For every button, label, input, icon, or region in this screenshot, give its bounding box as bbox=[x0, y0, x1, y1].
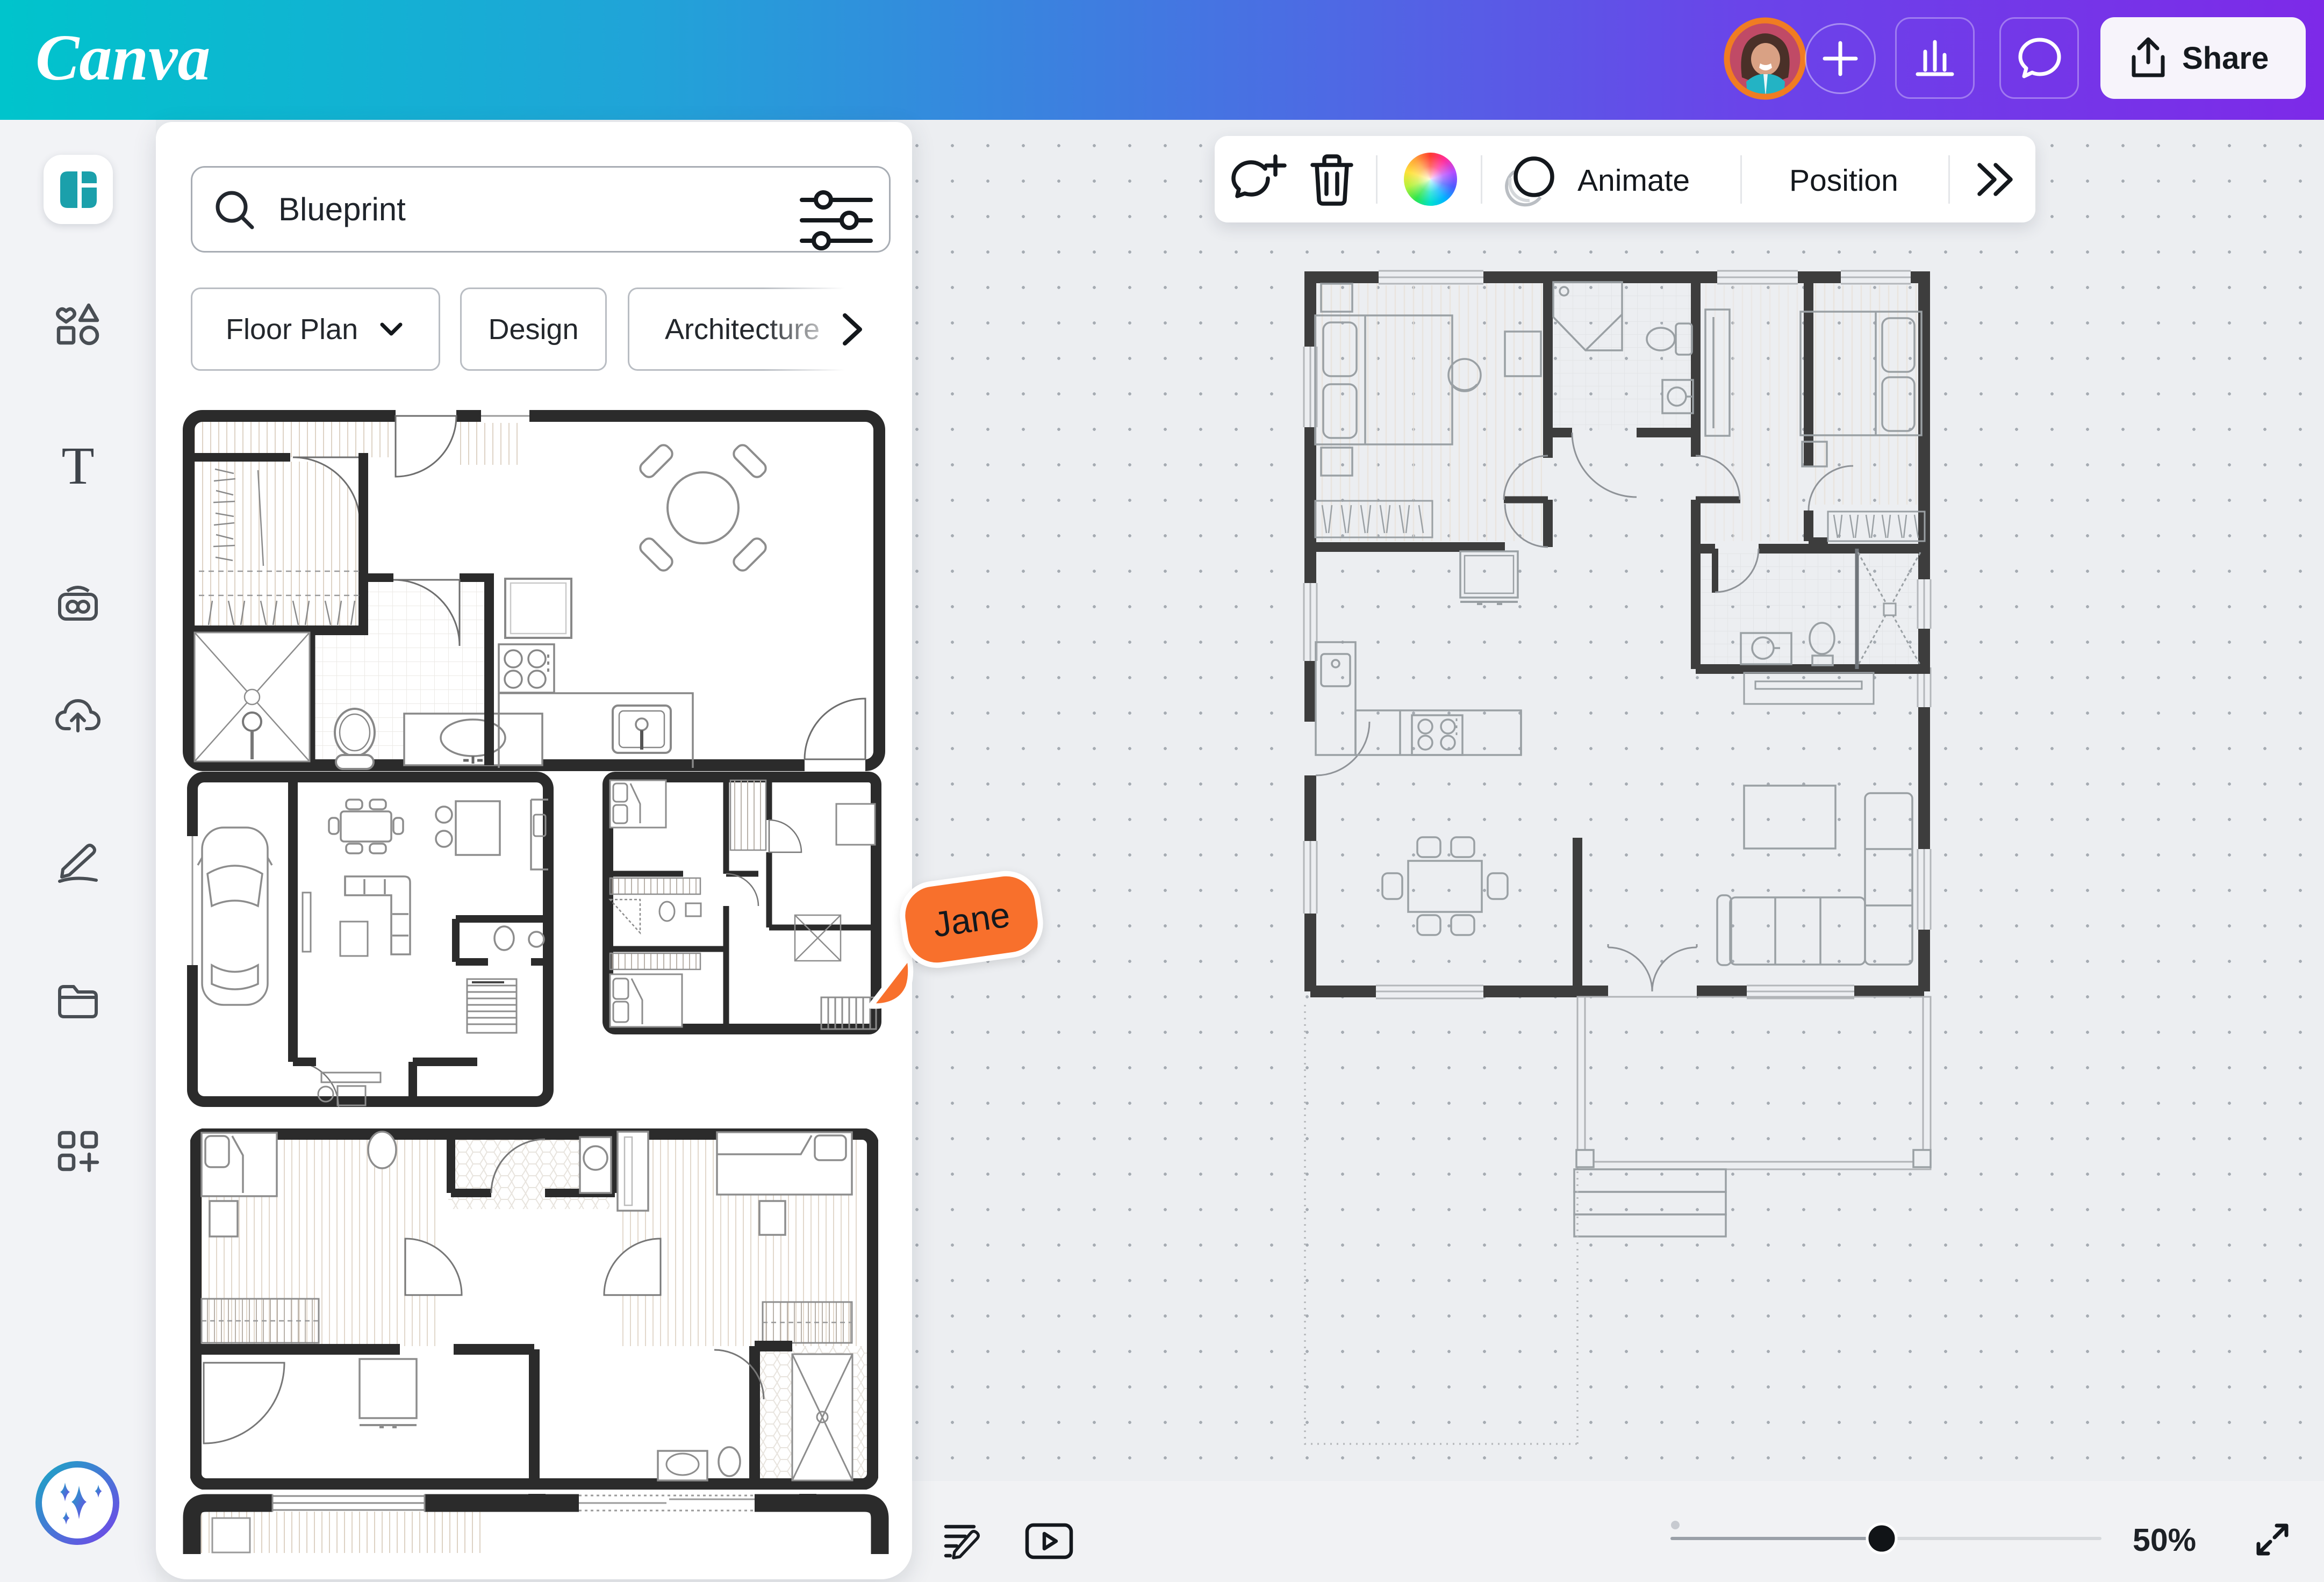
svg-text:T: T bbox=[61, 444, 94, 489]
svg-text:Canva: Canva bbox=[35, 21, 210, 94]
